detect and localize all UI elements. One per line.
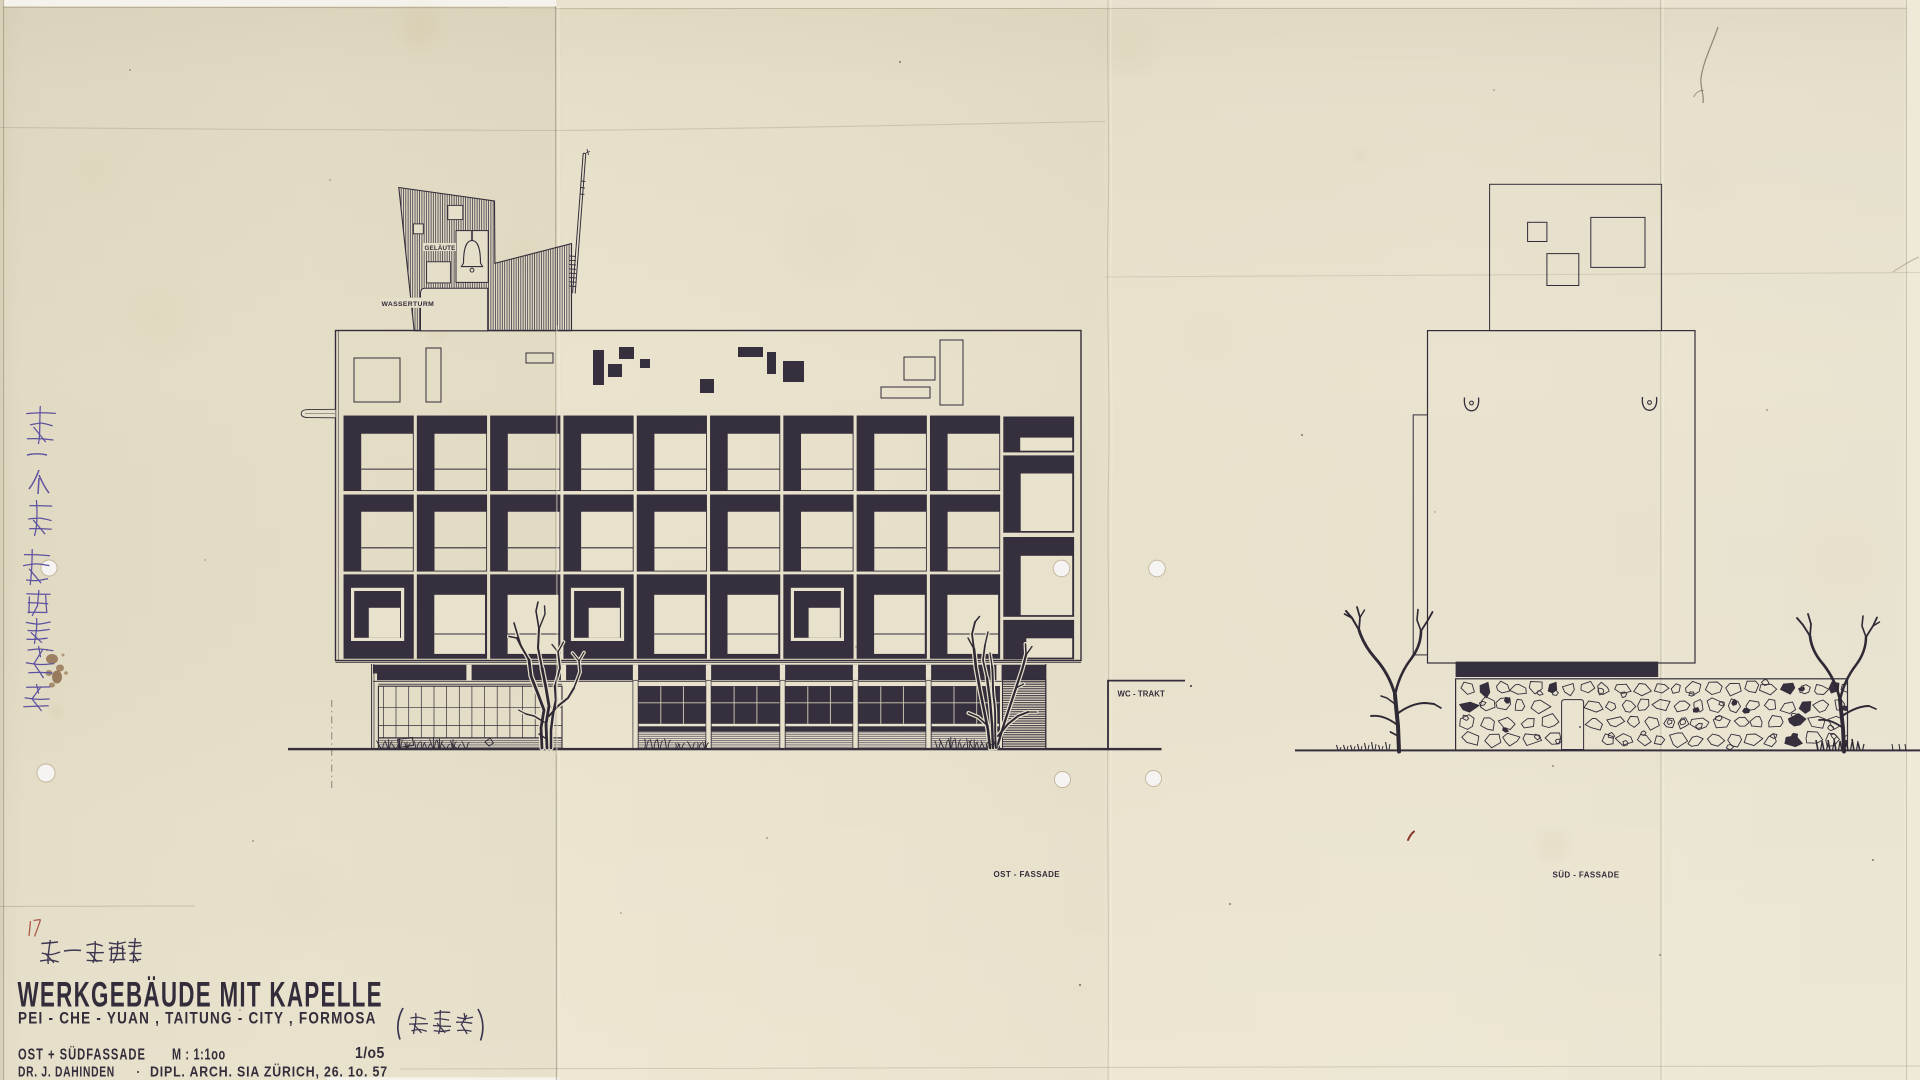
- svg-text:PEI - CHE - YUAN , TAITUNG - C: PEI - CHE - YUAN , TAITUNG - CITY , FORM…: [18, 1009, 377, 1028]
- svg-text:OST - FASSADE: OST - FASSADE: [994, 870, 1061, 879]
- svg-text:OST + SÜDFASSADE: OST + SÜDFASSADE: [18, 1044, 146, 1063]
- svg-text:SÜD - FASSADE: SÜD - FASSADE: [1553, 871, 1620, 880]
- svg-text:WASSERTURM: WASSERTURM: [382, 301, 435, 308]
- svg-text:M : 1:1oo: M : 1:1oo: [172, 1045, 226, 1063]
- svg-text:WC - TRAKT: WC - TRAKT: [1118, 689, 1165, 698]
- svg-text:GELÄUTE: GELÄUTE: [425, 245, 456, 252]
- svg-text:DIPL. ARCH. SIA ZÜRICH, 26. 1: DIPL. ARCH. SIA ZÜRICH, 26. 1o. 57: [150, 1064, 388, 1080]
- svg-text:DR. J. DAHINDEN: DR. J. DAHINDEN: [18, 1064, 115, 1080]
- svg-text:1/o5: 1/o5: [355, 1045, 385, 1062]
